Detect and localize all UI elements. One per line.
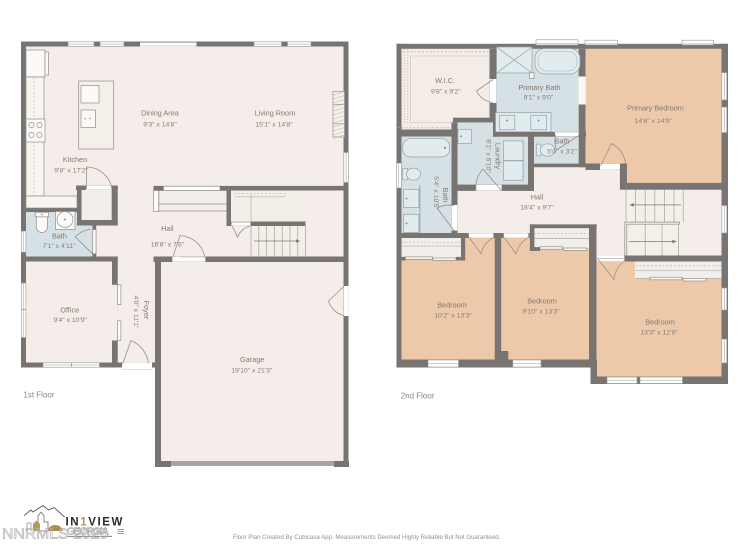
svg-text:13'3" x 12'9": 13'3" x 12'9": [640, 330, 678, 337]
svg-text:Living Room: Living Room: [255, 109, 296, 118]
svg-text:NNRMLS 2025: NNRMLS 2025: [2, 525, 108, 542]
svg-text:Office: Office: [60, 305, 79, 314]
svg-text:Laundry: Laundry: [494, 143, 503, 170]
svg-text:Floor Plan Created By Cubicasa: Floor Plan Created By Cubicasa App. Meas…: [233, 534, 501, 541]
svg-text:18'4" x 9'7": 18'4" x 9'7": [520, 205, 554, 212]
svg-text:Primary Bath: Primary Bath: [518, 83, 560, 92]
svg-text:Bath: Bath: [441, 187, 450, 202]
svg-text:Dining Area: Dining Area: [141, 109, 180, 118]
svg-text:Kitchen: Kitchen: [63, 155, 87, 164]
svg-text:Bedroom: Bedroom: [527, 297, 557, 306]
svg-text:14'6" x 14'9": 14'6" x 14'9": [635, 118, 673, 125]
svg-text:16'8" x 7'8": 16'8" x 7'8": [151, 242, 185, 249]
svg-text:19'10" x 21'3": 19'10" x 21'3": [231, 368, 273, 375]
svg-text:9'1" x 9'0": 9'1" x 9'0": [524, 95, 554, 102]
svg-text:Hall: Hall: [161, 224, 174, 233]
svg-text:9'10" x 13'3": 9'10" x 13'3": [522, 309, 560, 316]
svg-text:Primary Bedroom: Primary Bedroom: [627, 103, 684, 112]
svg-text:W.I.C.: W.I.C.: [435, 76, 455, 85]
svg-text:9'3" x 14'8": 9'3" x 14'8": [143, 121, 177, 128]
svg-text:9'8" x 17'2": 9'8" x 17'2": [54, 167, 88, 174]
svg-text:8'1" x 6'10": 8'1" x 6'10": [485, 139, 492, 173]
svg-text:Hall: Hall: [531, 193, 544, 202]
svg-text:9'8" x 9'2": 9'8" x 9'2": [431, 89, 461, 96]
svg-text:Garage: Garage: [240, 355, 264, 364]
svg-text:7'1" x 4'11": 7'1" x 4'11": [43, 243, 77, 250]
svg-text:Bedroom: Bedroom: [437, 301, 467, 310]
svg-text:5'0" x 3'2": 5'0" x 3'2": [547, 149, 577, 156]
svg-text:10'2" x 13'3": 10'2" x 13'3": [434, 313, 472, 320]
svg-text:2nd Floor: 2nd Floor: [401, 392, 435, 401]
svg-text:4'0" x 11'1": 4'0" x 11'1": [132, 296, 139, 330]
svg-text:Bath: Bath: [52, 232, 67, 241]
svg-text:Bath: Bath: [554, 136, 569, 145]
svg-text:Foyer: Foyer: [142, 301, 151, 320]
svg-text:Bedroom: Bedroom: [645, 318, 675, 327]
svg-text:1st Floor: 1st Floor: [23, 391, 54, 400]
svg-text:15'1" x 14'8": 15'1" x 14'8": [255, 121, 293, 128]
svg-text:9'4" x 10'9": 9'4" x 10'9": [53, 317, 87, 324]
svg-text:5'4" x 10'5": 5'4" x 10'5": [432, 176, 439, 210]
